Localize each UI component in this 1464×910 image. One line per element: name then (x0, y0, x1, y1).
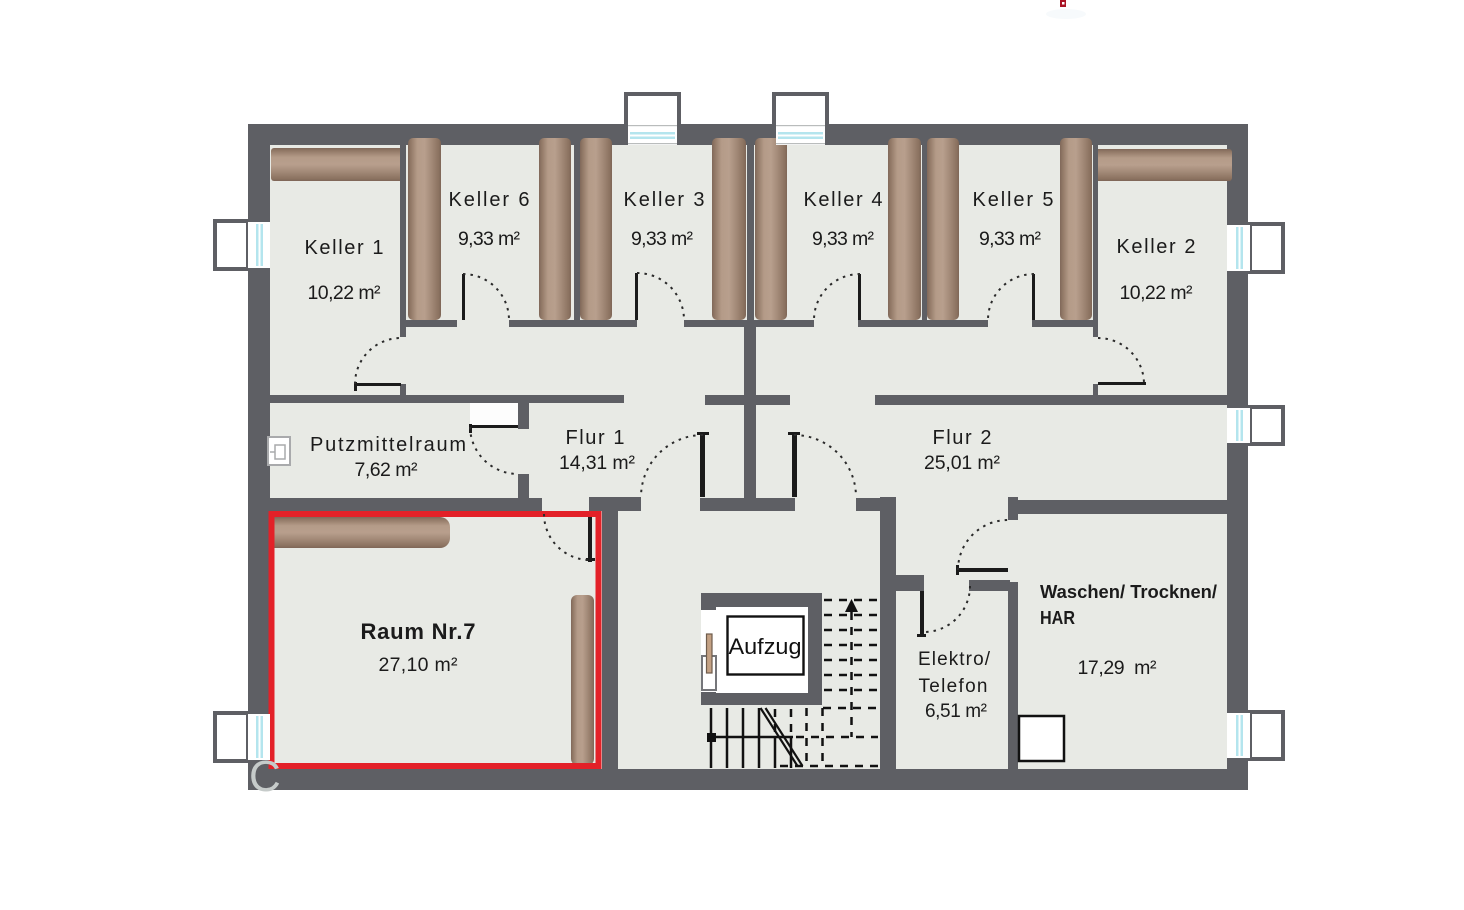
svg-text:Keller 1: Keller 1 (305, 237, 384, 259)
svg-text:Flur 2: Flur 2 (933, 427, 992, 449)
svg-text:27,10 m²: 27,10 m² (379, 654, 459, 676)
svg-text:10,22 m²: 10,22 m² (1120, 282, 1194, 304)
svg-text:Telefon: Telefon (919, 676, 988, 697)
svg-text:Aufzug: Aufzug (729, 634, 802, 659)
svg-text:25,01 m²: 25,01 m² (924, 452, 1001, 474)
svg-text:Flur 1: Flur 1 (566, 427, 625, 449)
svg-text:Raum Nr.7: Raum Nr.7 (361, 619, 476, 644)
svg-text:17,29 m²: 17,29 m² (1078, 657, 1158, 679)
svg-text:9,33 m²: 9,33 m² (812, 228, 875, 250)
svg-text:Keller 4: Keller 4 (804, 189, 883, 211)
svg-text:9,33 m²: 9,33 m² (979, 228, 1042, 250)
svg-text:9,33 m²: 9,33 m² (631, 228, 694, 250)
svg-text:HAR: HAR (1040, 608, 1075, 628)
svg-text:C: C (249, 752, 281, 801)
svg-text:Putzmittelraum: Putzmittelraum (310, 434, 466, 456)
svg-text:Waschen/ Trocknen/: Waschen/ Trocknen/ (1040, 582, 1217, 602)
svg-text:Elektro/: Elektro/ (918, 649, 991, 670)
svg-text:7,62 m²: 7,62 m² (355, 459, 419, 481)
svg-text:9,33 m²: 9,33 m² (458, 228, 521, 250)
svg-text:6,51 m²: 6,51 m² (925, 701, 987, 722)
svg-text:14,31 m²: 14,31 m² (559, 452, 636, 474)
svg-text:Keller 2: Keller 2 (1117, 236, 1196, 258)
svg-text:10,22 m²: 10,22 m² (308, 282, 382, 304)
